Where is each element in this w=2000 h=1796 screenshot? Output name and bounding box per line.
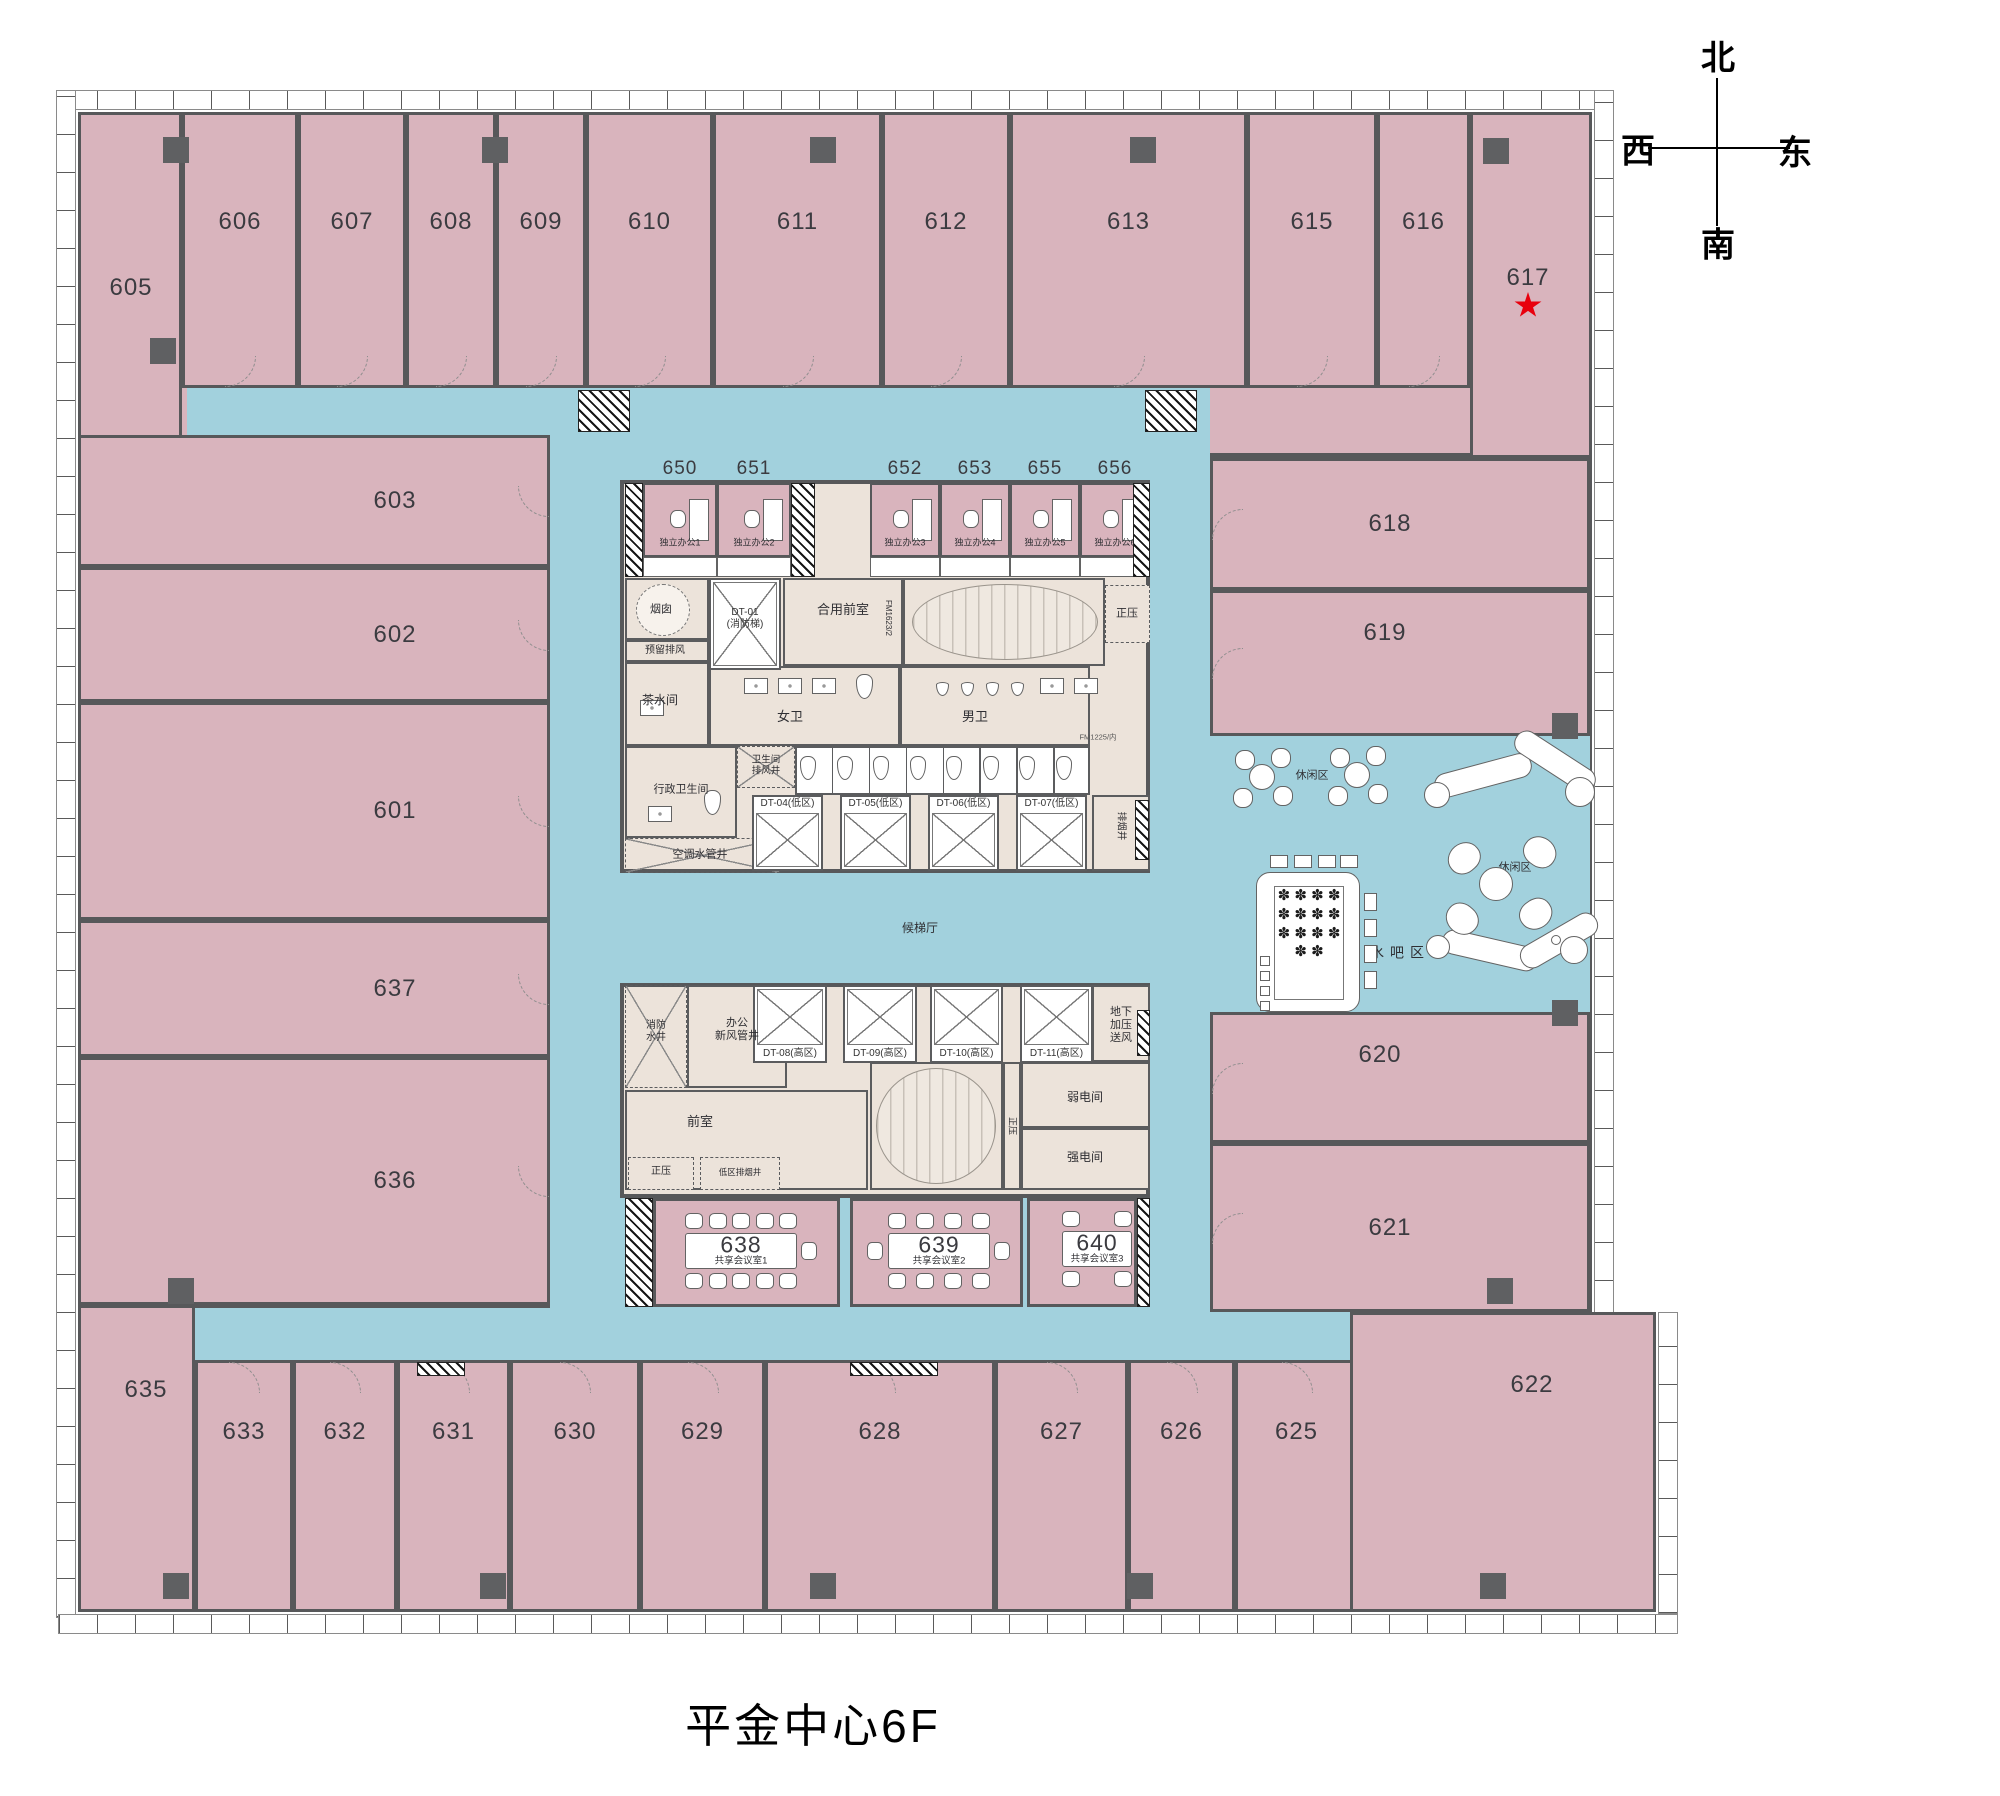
mini-office-desk [1052,499,1072,541]
hatch-strip [1135,800,1149,860]
room-633 [195,1360,293,1612]
elevator-label: DT-09(高区) [845,1047,915,1061]
elevator-shaft-x [847,989,913,1045]
lounge-chair [1273,786,1293,806]
plan-label-22: 强电间 [1067,1150,1103,1164]
toilet-icon [1056,756,1072,780]
room-number-628: 628 [858,1418,901,1446]
hatch-strip [850,1362,938,1376]
plan-label-14: 消防 水井 [646,1020,666,1044]
room-635 [78,1305,195,1612]
room-number-630: 630 [553,1418,596,1446]
room-number-611: 611 [777,208,818,236]
room-number-637: 637 [373,975,416,1003]
room-603 [78,435,550,567]
waterbar-flowers: ✽ ✽ ✽ ✽ ✽ ✽ ✽ ✽ ✽ ✽ ✽ ✽ ✽ ✽ [1274,886,1344,1000]
elevator-DT-10(高区): DT-10(高区) [930,985,1003,1063]
structural-column [150,338,176,364]
hatch-strip [1137,1198,1150,1307]
stall-divider [943,746,945,795]
plan-label-25: 水吧区 [1370,945,1430,962]
waterbar-tray [1260,986,1270,996]
elevator-DT-01(消防梯): DT-01 (消防梯) [709,578,781,670]
sink-icon [1074,678,1098,694]
mini-office-desk [982,499,1002,541]
room-number-632: 632 [323,1418,366,1446]
mini-office-number-656: 656 [1098,458,1133,480]
plan-label-21: 弱电间 [1067,1090,1103,1104]
structural-column [1127,1573,1153,1599]
mini-office-chair [963,510,979,528]
room-number-621: 621 [1368,1214,1411,1242]
elevator-DT-08(高区): DT-08(高区) [753,985,827,1063]
plan-label-11: 空调水管井 [673,848,728,861]
plan-label-7: 男卫 [962,709,988,725]
room-602 [78,567,550,702]
room-number-631: 631 [432,1418,475,1446]
elevator-label: DT-01 (消防梯) [711,606,779,632]
elevator-DT-07(低区): DT-07(低区) [1016,795,1087,871]
meeting-chair [972,1273,990,1289]
sink-icon [744,678,768,694]
plan-label-2: 茶水间 [642,693,678,707]
meeting-chair [801,1242,817,1260]
sink-icon [812,678,836,694]
room-637 [78,920,550,1057]
structural-column [810,1573,836,1599]
compass-east: 东 [1778,126,1812,175]
plan-label-1: 预留排风 [645,645,685,657]
elevator-label: DT-06(低区) [930,797,997,811]
plan-label-8: FM1225/内 [1079,733,1116,742]
meeting-chair [779,1273,797,1289]
room-628 [765,1360,995,1612]
toilet-icon [910,756,926,780]
room-619 [1210,590,1590,736]
waterbar-tray [1260,971,1270,981]
elevator-label: DT-11(高区) [1022,1047,1091,1061]
plan-label-13: 候梯厅 [902,921,938,935]
hatch-strip [625,483,643,577]
structural-column [168,1278,194,1304]
waterbar-chair [1364,919,1377,937]
elevator-shaft-x [756,813,819,867]
stall-divider [1053,746,1055,795]
room-number-601: 601 [373,797,416,825]
meeting-chair [779,1213,797,1229]
stair-oval-2 [876,1068,996,1184]
compass-north: 北 [1701,31,1735,80]
plan-label-18: 正压 [651,1166,671,1178]
elevator-shaft-x [932,813,995,867]
room-630 [510,1360,640,1612]
meeting-chair [888,1273,906,1289]
plan-label-19: 低区排烟井 [719,1167,762,1177]
mini-office-label: 独立办公6 [1094,538,1135,549]
plan-label-4: FM1623/2 [883,600,893,636]
mini-office-label: 独立办公4 [954,538,995,549]
plan-label-23: 休闲区 [1296,769,1329,782]
room-number-615: 615 [1290,208,1333,236]
stall-divider [906,746,908,795]
lounge-side-table [1426,935,1450,959]
mini-office-desk [689,499,709,541]
room-625 [1235,1360,1358,1612]
plan-label-5: 正压 [1116,607,1138,620]
lounge-side-table [1479,867,1513,901]
mini-office-label: 独立办公2 [733,538,774,549]
plan-label-20: 正压 [1007,1117,1018,1135]
mini-office-number-655: 655 [1028,458,1063,480]
lounge-side-table [1551,935,1561,945]
elevator-label: DT-08(高区) [755,1047,825,1061]
sink-icon [1040,678,1064,694]
room-number-602: 602 [373,621,416,649]
meeting-chair [867,1242,883,1260]
floor-plan-page: 6056066076086096106116126136156166176036… [0,0,2000,1796]
waterbar-stool [1318,855,1336,868]
lounge-chair [1328,786,1348,806]
hatch-strip [1133,483,1150,577]
compass-horizontal-line [1648,147,1790,149]
meeting-chair [1062,1211,1080,1227]
structural-column [482,137,508,163]
sink-icon [778,678,802,694]
room-number-612: 612 [924,208,967,236]
plan-label-10: 行政卫生间 [654,783,709,796]
meeting-chair [756,1213,774,1229]
room-number-617: 617 [1506,264,1549,292]
plan-label-0: 烟囱 [650,603,672,616]
toilet-icon [837,756,853,780]
sink-icon [648,806,672,822]
hatch-strip [578,390,630,432]
structural-column [1552,1000,1578,1026]
room-number-610: 610 [628,208,671,236]
mini-office-sill [717,557,791,577]
lounge-round-table [1344,762,1370,788]
room-number-620: 620 [1358,1041,1401,1069]
lounge-chair [1368,784,1388,804]
mini-office-label: 独立办公5 [1024,538,1065,549]
meeting-chair [685,1213,703,1229]
waterbar-chair [1364,971,1377,989]
structural-column [1480,1573,1506,1599]
lounge-armchair [1441,836,1486,881]
structural-column [1483,138,1509,164]
room-611 [713,112,882,388]
room-636 [78,1057,550,1305]
elevator-DT-06(低区): DT-06(低区) [928,795,999,871]
mini-office-chair [1103,510,1119,528]
meeting-chair [994,1242,1010,1260]
plan-label-17: 前室 [687,1114,713,1130]
room-number-603: 603 [373,487,416,515]
structural-column [810,137,836,163]
room-number-636: 636 [373,1167,416,1195]
page-title: 平金中心6F [513,1690,1113,1756]
elevator-DT-04(低区): DT-04(低区) [752,795,823,871]
stall-divider [832,746,834,795]
structural-column [163,137,189,163]
room-number-619: 619 [1363,619,1406,647]
room-632 [293,1360,397,1612]
room-number-635: 635 [124,1376,167,1404]
meeting-chair [1114,1211,1132,1227]
lounge-side-table [1560,936,1588,964]
room-601 [78,702,550,920]
plan-label-16: 地下 加压 送风 [1110,1006,1132,1046]
stall-divider [1016,746,1018,795]
mini-office-desk [763,499,783,541]
lounge-chair [1366,746,1386,766]
room-number-613: 613 [1107,208,1150,236]
mini-office-label: 独立办公3 [884,538,925,549]
meeting-chair [732,1213,750,1229]
structural-column [1130,137,1156,163]
lounge-side-table [1424,782,1450,808]
mini-office-label: 独立办公1 [659,538,700,549]
stall-divider [979,746,981,795]
hatch-strip [417,1362,465,1376]
room-number-608: 608 [429,208,472,236]
lounge-round-table [1249,764,1275,790]
mini-office-sill [870,557,940,577]
elevator-shaft-x [1024,989,1089,1045]
waterbar-stool [1340,855,1358,868]
meeting-chair [888,1213,906,1229]
meeting-chair [1062,1271,1080,1287]
plan-label-6: 女卫 [777,709,803,725]
room-616 [1377,112,1470,388]
mini-office-desk [912,499,932,541]
room-613 [1010,112,1247,388]
room-number-633: 633 [222,1418,265,1446]
stall-divider [869,746,871,795]
plan-label-3: 合用前室 [817,602,869,618]
mini-office-chair [893,510,909,528]
plan-label-12: 排烟井 [1115,812,1126,841]
lounge-side-table [1565,777,1595,807]
compass-vertical-line [1716,78,1718,226]
mini-office-chair [670,510,686,528]
compass-west: 西 [1621,124,1655,173]
structural-column [1552,713,1578,739]
room-number-629: 629 [681,1418,724,1446]
room-627 [995,1360,1128,1612]
mini-office-number-651: 651 [737,458,772,480]
plan-label-15: 办公 新风管井 [715,1017,759,1043]
waterbar-stool [1270,855,1288,868]
stair-oval-1 [912,584,1098,660]
room-622 [1350,1312,1656,1612]
room-number-616: 616 [1402,208,1445,236]
room-606 [182,112,298,388]
mini-office-sill [940,557,1010,577]
waterbar-tray [1260,956,1270,966]
mini-office-chair [1033,510,1049,528]
room-number-626: 626 [1160,1418,1203,1446]
mini-office-number-650: 650 [663,458,698,480]
elevator-label: DT-04(低区) [754,797,821,811]
meeting-chair [916,1273,934,1289]
room-number-605: 605 [109,274,152,302]
hatch-strip [625,1198,653,1307]
mini-office-chair [744,510,760,528]
plan-label-9: 卫生间 排风井 [752,755,781,778]
meeting-room-label: 共享会议室2 [913,1255,966,1266]
room-number-606: 606 [218,208,261,236]
mini-office-sill [1010,557,1080,577]
elevator-label: DT-07(低区) [1018,797,1085,811]
meeting-chair [709,1213,727,1229]
structural-column [1487,1278,1513,1304]
meeting-chair [685,1273,703,1289]
waterbar-stool [1294,855,1312,868]
mini-office-number-653: 653 [958,458,993,480]
meeting-room-label: 共享会议室1 [715,1255,768,1266]
elevator-label: DT-10(高区) [932,1047,1001,1061]
elevator-shaft-x [1020,813,1083,867]
toilet-icon [983,756,999,780]
elevator-shaft-x [757,989,823,1045]
hatch-strip [1137,1010,1150,1056]
room-620 [1210,1012,1590,1143]
elevator-DT-11(高区): DT-11(高区) [1020,985,1093,1063]
room-number-622: 622 [1510,1371,1553,1399]
waterbar-tray [1260,1001,1270,1011]
room-610 [586,112,713,388]
meeting-chair [944,1273,962,1289]
room-609 [496,112,586,388]
room-number-609: 609 [519,208,562,236]
lounge-chair [1271,748,1291,768]
room-612 [882,112,1010,388]
lounge-chair [1233,788,1253,808]
waterbar-chair [1364,945,1377,963]
structural-column [163,1573,189,1599]
elevator-DT-09(高区): DT-09(高区) [843,985,917,1063]
meeting-room-label: 共享会议室3 [1071,1253,1124,1264]
compass-south: 南 [1701,218,1735,267]
elevator-shaft-x [844,813,907,867]
room-629 [640,1360,765,1612]
mini-office-number-652: 652 [888,458,923,480]
elevator-DT-05(低区): DT-05(低区) [840,795,911,871]
room-number-625: 625 [1275,1418,1318,1446]
plan-layer: 6056066076086096106116126136156166176036… [0,0,2000,1796]
hatch-strip [1145,390,1197,432]
meeting-chair [756,1273,774,1289]
meeting-chair [916,1213,934,1229]
room-number-618: 618 [1368,510,1411,538]
room-number-627: 627 [1040,1418,1083,1446]
meeting-chair [709,1273,727,1289]
meeting-chair [732,1273,750,1289]
meeting-chair [944,1213,962,1229]
elevator-shaft-x [934,989,999,1045]
room-number-607: 607 [330,208,373,236]
waterbar-chair [1364,893,1377,911]
meeting-chair [1114,1271,1132,1287]
room-615 [1247,112,1377,388]
meeting-chair [972,1213,990,1229]
mini-office-sill [643,557,717,577]
room-607 [298,112,406,388]
structural-column [480,1573,506,1599]
elevator-label: DT-05(低区) [842,797,909,811]
hatch-strip [791,483,815,577]
